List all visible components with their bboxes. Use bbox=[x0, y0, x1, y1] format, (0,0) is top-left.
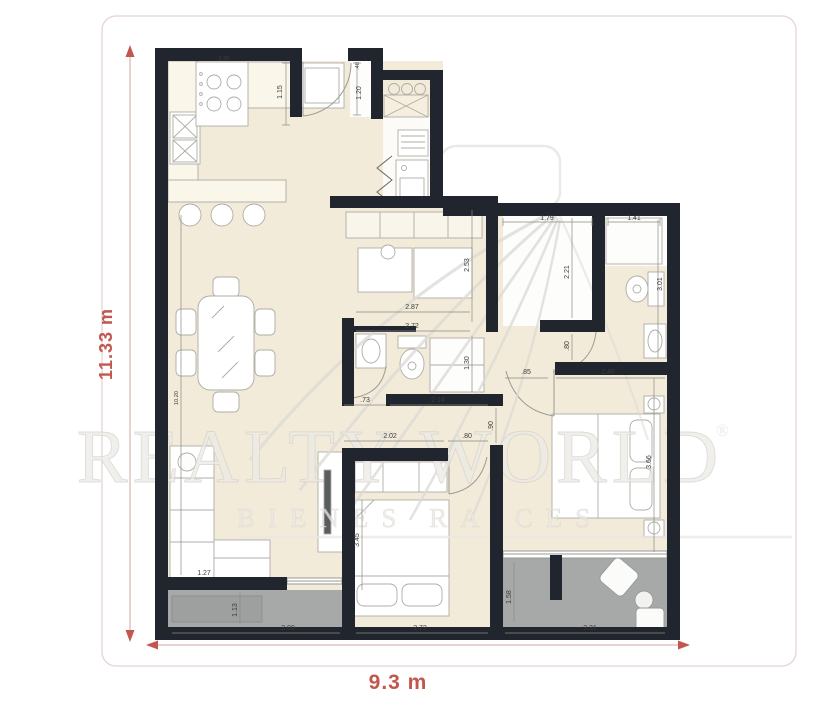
dim-balcony2-depth: 1.58 bbox=[506, 590, 513, 604]
wall-laundry-right bbox=[430, 80, 443, 206]
dim-bed1-door: .80 bbox=[462, 433, 472, 440]
dim-bed1-top: 2.02 bbox=[383, 433, 397, 440]
dim-balcony2-width: 3.31 bbox=[583, 625, 597, 632]
dim-closet-hall: 2.21 bbox=[564, 265, 571, 279]
watermark-registered-icon: ® bbox=[716, 421, 729, 440]
dim-bath1-door: .73 bbox=[360, 397, 370, 404]
dim-entry-closet: 1.20 bbox=[356, 86, 363, 100]
balcony-planter bbox=[172, 596, 262, 622]
floor-plan-card: REALTY WORLD ® BIENES RAICES bbox=[0, 0, 828, 711]
dim-closet-door: .80 bbox=[564, 341, 571, 351]
sliding-door-balcony1 bbox=[287, 578, 342, 584]
dim-bath2-length: 3.01 bbox=[657, 277, 664, 291]
dim-bath1-width: 2.72 bbox=[405, 323, 419, 330]
wall-entry-closet-right bbox=[371, 61, 383, 119]
wall-study-top bbox=[330, 196, 498, 208]
overall-height-label: 11.33 m bbox=[96, 308, 116, 380]
sliding-door-balcony2 bbox=[503, 551, 667, 558]
dim-hall-width: 1.79 bbox=[540, 215, 554, 222]
wall-balcony1 bbox=[168, 577, 287, 590]
shower-2 bbox=[606, 218, 662, 264]
dim-stove: 2.30 bbox=[219, 56, 230, 62]
bed1-pillow bbox=[357, 584, 397, 606]
dining-chair bbox=[176, 309, 196, 335]
bar-stools bbox=[179, 204, 265, 226]
overall-width-label: 9.3 m bbox=[369, 671, 428, 694]
bar-counter bbox=[168, 180, 286, 202]
dining-chair bbox=[213, 392, 239, 412]
dim-shower-width: 1.41 bbox=[627, 215, 641, 222]
study-dresser bbox=[414, 248, 472, 298]
wall-entry-stub bbox=[290, 61, 302, 117]
dim-study-depth: 2.53 bbox=[464, 258, 471, 272]
bed1-pillow bbox=[402, 584, 442, 606]
watermark-tagline-text: BIENES RAICES bbox=[237, 503, 603, 533]
arrow-up-icon bbox=[126, 45, 135, 57]
floor-plan-image: REALTY WORLD ® BIENES RAICES bbox=[0, 0, 828, 711]
kitchen-sink bbox=[170, 112, 200, 164]
wall-hall-stub bbox=[540, 320, 605, 332]
sink-2 bbox=[644, 324, 666, 358]
dining-chair bbox=[255, 309, 275, 335]
dim-balcony1-depth: 1.13 bbox=[232, 603, 239, 617]
wall-left bbox=[155, 48, 168, 640]
dim-kitchen-depth: 1.15 bbox=[277, 85, 284, 99]
dim-bed1-passage: .90 bbox=[488, 421, 495, 431]
dining-chair bbox=[213, 277, 239, 297]
dim-bed1-length: 3.45 bbox=[354, 533, 361, 547]
fridge bbox=[300, 63, 344, 108]
dim-bed2-length: 3.66 bbox=[646, 455, 653, 469]
wall-bath2-left bbox=[592, 216, 605, 330]
study-stool bbox=[381, 245, 395, 259]
dim-bed2-width: 2.46 bbox=[601, 369, 615, 376]
dim-bath1-wall: 2.14 bbox=[431, 397, 445, 404]
arrow-right-icon bbox=[678, 641, 690, 650]
dining-table bbox=[198, 296, 254, 390]
wall-bed1-top bbox=[342, 448, 448, 461]
wall-bath1-left bbox=[342, 318, 354, 406]
dim-living-length: 10.20 bbox=[174, 391, 180, 405]
wall-right bbox=[667, 203, 680, 640]
dim-study-width: 2.87 bbox=[405, 304, 419, 311]
wall-laundry-top bbox=[377, 70, 443, 80]
dryer bbox=[398, 130, 428, 156]
arrow-left-icon bbox=[146, 641, 158, 650]
patio-table bbox=[635, 591, 653, 609]
vanity-1 bbox=[356, 334, 386, 368]
arrow-down-icon bbox=[126, 630, 135, 642]
dining-chair bbox=[255, 350, 275, 376]
dining-chair bbox=[176, 350, 196, 376]
wall-entry-closet-top bbox=[348, 48, 383, 61]
wall-study-right bbox=[486, 208, 498, 332]
dim-bed2-door: .85 bbox=[521, 369, 531, 376]
dim-balcony1-width: 2.00 bbox=[281, 625, 295, 632]
dim-sofa-wall: 1.27 bbox=[197, 570, 211, 577]
dim-bath1-depth: 1.30 bbox=[464, 356, 471, 370]
dim-entry-door: .40 bbox=[355, 62, 361, 70]
stove bbox=[196, 62, 248, 126]
wall-bed1-right bbox=[490, 445, 503, 627]
wall-balcony2-stub bbox=[550, 555, 562, 600]
dim-bed1-width: 2.72 bbox=[413, 625, 427, 632]
